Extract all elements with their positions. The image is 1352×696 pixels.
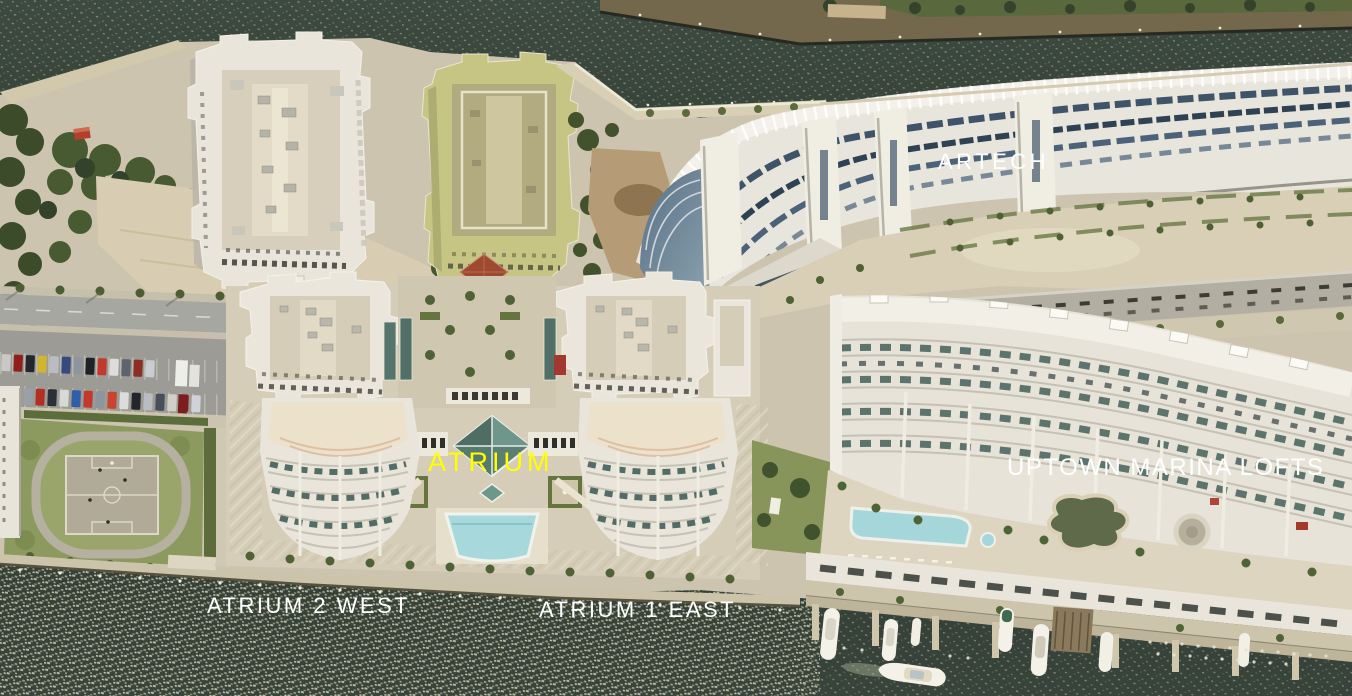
boat-lift xyxy=(1051,607,1094,654)
atrium-pool xyxy=(446,514,538,561)
uptown-spa xyxy=(981,533,995,547)
atrium-north-block-west xyxy=(240,272,398,402)
label-atrium: ATRIUM xyxy=(428,449,554,476)
label-artech: ARTECH xyxy=(938,151,1049,173)
aerial-scene xyxy=(0,0,1352,696)
basketball-court xyxy=(66,456,158,534)
recreation-park xyxy=(4,418,230,574)
aerial-photo: ARTECH ATRIUM UPTOWN MARINA LOFTS ATRIUM… xyxy=(0,0,1352,696)
label-atrium-1-east: ATRIUM 1 EAST xyxy=(539,599,736,621)
uptown-pond xyxy=(1049,496,1128,550)
label-uptown-marina-lofts: UPTOWN MARINA LOFTS xyxy=(1007,456,1324,480)
west-edge-building xyxy=(0,386,20,538)
atrium-complex xyxy=(226,272,768,584)
label-atrium-2-west: ATRIUM 2 WEST xyxy=(207,595,410,617)
white-condo-building xyxy=(188,32,374,290)
